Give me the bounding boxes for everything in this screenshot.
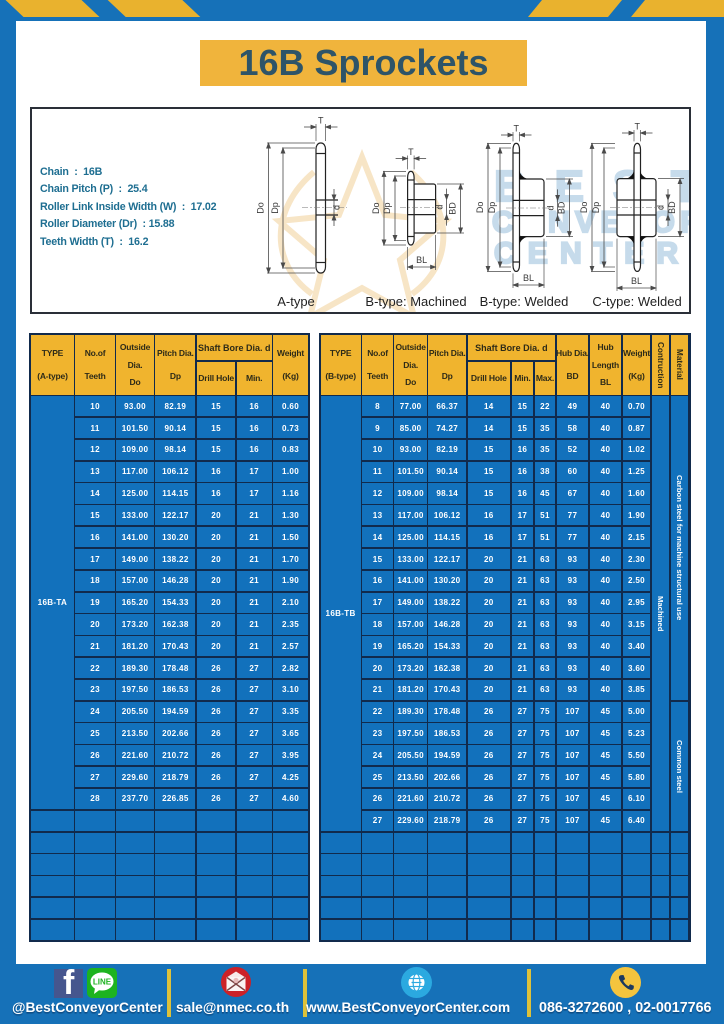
svg-text:A-type: A-type (277, 294, 315, 309)
svg-text:T: T (318, 116, 324, 126)
svg-text:T: T (635, 122, 641, 132)
svg-text:d: d (332, 205, 342, 210)
svg-text:Dp: Dp (591, 202, 601, 214)
svg-text:C-type: Welded: C-type: Welded (592, 294, 681, 309)
svg-text:T: T (408, 147, 414, 157)
svg-text:BD: BD (557, 201, 567, 214)
svg-text:Do: Do (256, 202, 266, 214)
svg-text:BD: BD (448, 202, 458, 215)
svg-text:BL: BL (416, 255, 427, 265)
svg-text:d: d (546, 205, 556, 210)
svg-text:B-type: Machined: B-type: Machined (365, 294, 466, 309)
svg-text:d: d (435, 205, 445, 210)
svg-text:Do: Do (579, 202, 589, 214)
svg-text:BD: BD (667, 201, 677, 214)
svg-text:T: T (514, 124, 520, 134)
svg-text:LINE: LINE (93, 978, 112, 987)
svg-text:CENTER: CENTER (494, 237, 684, 270)
svg-text:B-type: Welded: B-type: Welded (480, 294, 569, 309)
svg-text:BL: BL (523, 273, 534, 283)
svg-text:Dp: Dp (270, 202, 280, 214)
svg-text:BL: BL (631, 276, 642, 286)
svg-text:Do: Do (371, 202, 381, 214)
svg-text:d: d (656, 205, 666, 210)
svg-text:Dp: Dp (487, 202, 497, 214)
svg-text:Dp: Dp (382, 202, 392, 214)
svg-text:Do: Do (475, 202, 485, 214)
